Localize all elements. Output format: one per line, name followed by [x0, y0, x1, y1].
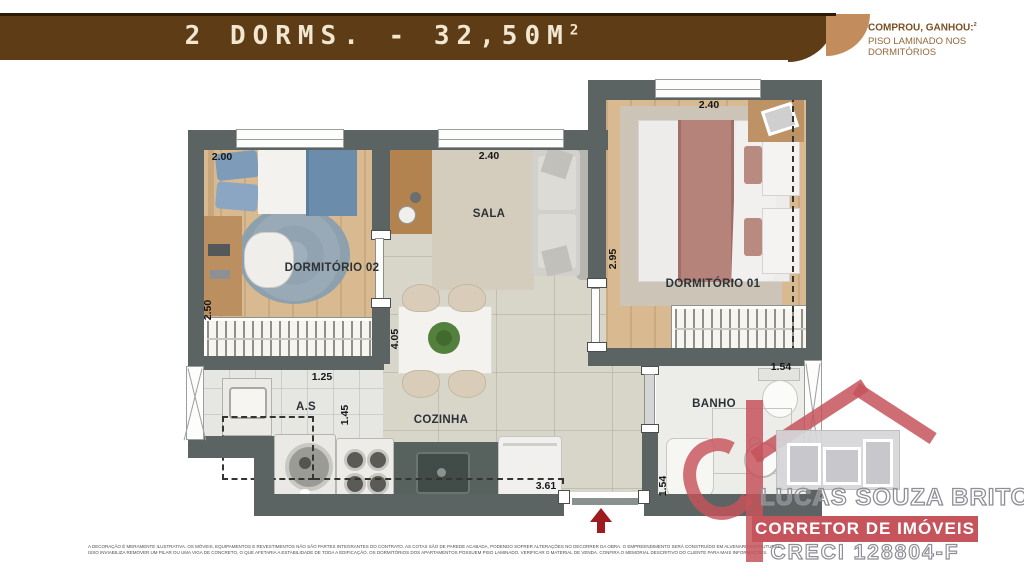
dim-banho-width: 1.54: [771, 361, 791, 373]
broker-role: CORRETOR DE IMÓVEIS: [752, 516, 978, 542]
room-label-as: A.S: [296, 401, 316, 413]
desk-chair: [244, 232, 294, 288]
room-label-banho: BANHO: [692, 398, 736, 410]
entry-door-leaf: [572, 498, 638, 505]
room-label-sala: SALA: [473, 208, 506, 220]
dining-chair: [448, 284, 486, 312]
dim-banho-height: 1.54: [657, 476, 669, 496]
room-label-cozinha: COZINHA: [414, 414, 469, 426]
rug-sala: [432, 150, 534, 290]
kitchen-sink: [416, 452, 470, 494]
plant: [428, 322, 460, 354]
room-label-dorm02: DORMITÓRIO 02: [285, 262, 380, 274]
door-jamb: [641, 424, 659, 433]
header-band-topline: [0, 13, 836, 16]
sideboard-decor: [398, 206, 416, 224]
desk-keyboard: [210, 270, 230, 279]
dim-as-height: 1.45: [339, 405, 351, 425]
dim-sala-width: 2.40: [479, 150, 499, 162]
bed-pillow-accent: [744, 218, 762, 256]
door-jamb: [371, 298, 391, 308]
bed-blanket: [306, 146, 357, 216]
window-dorm01: [655, 79, 761, 98]
room-label-dorm01: DORMITÓRIO 01: [666, 278, 761, 290]
bed-pillow-accent: [744, 146, 762, 184]
bed-blanket: [678, 120, 734, 282]
window-dorm02: [236, 129, 344, 148]
bathroom-sink: [744, 442, 780, 478]
floorplan-page: 2 DORMS. - 32,50M2 COMPROU, GANHOU:2 PIS…: [0, 0, 1024, 576]
page-title-sup: 2: [570, 22, 586, 38]
dim-sala-dorm01-height: 2.95: [607, 249, 619, 269]
bed-pillow: [215, 181, 259, 212]
sofa: [532, 146, 596, 280]
dim-dorm02-width: 2.00: [212, 151, 232, 163]
door-jamb: [558, 490, 570, 504]
disclaimer-line2: ISSO INVIABILIZA REMOVER UM PILAR OU UMA…: [88, 550, 938, 556]
wall-dorm02-sala-lower: [372, 300, 390, 364]
entry-arrow-icon: [590, 508, 612, 533]
sideboard: [386, 150, 432, 234]
dining-chair: [448, 370, 486, 398]
sideboard-decor: [410, 192, 421, 203]
counter-projection-dashed: [314, 478, 564, 480]
disclaimer: A DECORAÇÃO É MERAMENTE ILUSTRATIVA. OS …: [88, 544, 938, 555]
door-jamb: [638, 490, 650, 504]
page-title-text: 2 DORMS. - 32,50M: [185, 21, 570, 51]
logo-roof-right: [852, 383, 936, 444]
stove: [336, 438, 394, 500]
promo-line1: COMPROU, GANHOU:: [868, 22, 974, 33]
promo-line2: PISO LAMINADO NOS DORMITÓRIOS: [868, 36, 1020, 58]
window-sala: [438, 129, 564, 148]
double-bed: [638, 120, 804, 282]
door-dorm01: [591, 288, 600, 346]
promo-sup: 2: [974, 22, 977, 28]
dim-cozinha-height: 4.05: [389, 329, 401, 349]
page-title: 2 DORMS. - 32,50M2: [170, 21, 600, 51]
header-band-tail-tan: [826, 14, 870, 56]
dim-cozinha-width: 3.61: [536, 480, 556, 492]
wall-bottom: [254, 494, 822, 516]
broker-role-band: CORRETOR DE IMÓVEIS: [752, 516, 978, 542]
wall-dorm02-sala-upper: [372, 148, 390, 236]
wall-dorm02-as: [188, 356, 384, 370]
window-as-left: [186, 366, 204, 440]
promo-block: COMPROU, GANHOU:2 PISO LAMINADO NOS DORM…: [868, 22, 1020, 58]
dining-chair: [402, 284, 440, 312]
desk-monitor: [208, 244, 230, 256]
wall-sala-dorm01: [588, 98, 606, 284]
window-banho-right: [804, 360, 822, 490]
door-jamb: [587, 278, 607, 288]
dim-dorm01-width: 2.40: [699, 99, 719, 111]
door-banho: [644, 374, 655, 426]
wardrobe-dorm02: [204, 318, 380, 360]
bed-sheet: [258, 148, 310, 214]
dim-dorm02-height: 2.50: [202, 300, 214, 320]
bathroom-cabinet: [666, 438, 714, 500]
dining-chair: [402, 370, 440, 398]
dim-as-width: 1.25: [312, 371, 332, 383]
door-jamb: [587, 342, 607, 352]
